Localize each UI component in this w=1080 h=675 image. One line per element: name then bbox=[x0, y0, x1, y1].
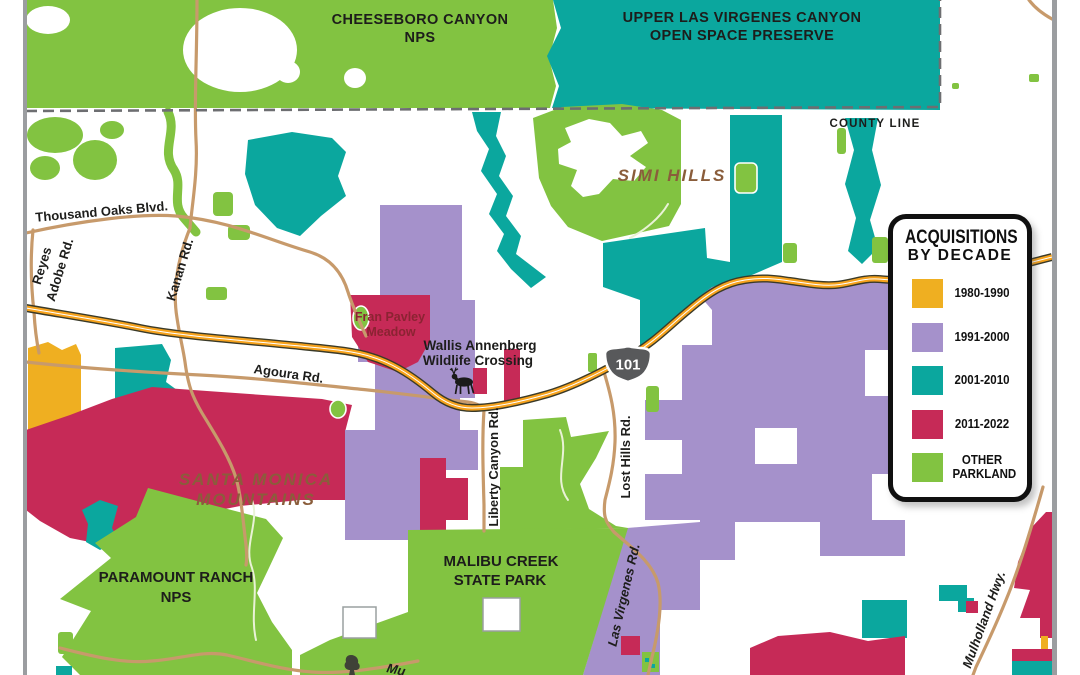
parkland-patch bbox=[330, 400, 346, 418]
fran-pavley-label-line1: Fran Pavley bbox=[355, 310, 425, 324]
acquisitions-map: 101 CHEESEBORO CANYON NPS UPPER LAS VIRG… bbox=[0, 0, 1080, 675]
legend-title: ACQUISITIONS BY DECADE bbox=[893, 228, 1027, 264]
us-101-shield-icon: 101 bbox=[605, 346, 651, 382]
us-101-shield-label: 101 bbox=[615, 357, 640, 374]
acquisition-2001-2010-region bbox=[472, 112, 546, 288]
acquisition-2011-2022-region bbox=[621, 636, 640, 655]
malibu-creek-label-line1: MALIBU CREEK bbox=[444, 553, 559, 570]
parkland-patch bbox=[646, 386, 659, 412]
santa-monica-label-line1: SANTA MONICA bbox=[179, 470, 333, 489]
terrain-gap bbox=[344, 68, 366, 88]
parkland-patch bbox=[837, 128, 846, 154]
terrain-gap bbox=[483, 598, 520, 631]
parkland-patch bbox=[735, 163, 757, 193]
legend-item-1991-2000: 1991-2000 bbox=[893, 315, 1027, 359]
legend-item-other-parkland: OTHERPARKLAND bbox=[893, 446, 1027, 490]
legend-swatch-2001-2010 bbox=[912, 366, 943, 395]
legend-swatch-other-parkland bbox=[912, 453, 943, 482]
mulholland-hwy-label: Mulholland Hwy. bbox=[959, 569, 1008, 670]
lost-hills-rd-label: Lost Hills Rd. bbox=[618, 415, 633, 498]
legend-swatch-2011-2022 bbox=[912, 410, 943, 439]
right-margin bbox=[1057, 0, 1080, 675]
legend-item-2011-2022: 2011-2022 bbox=[893, 402, 1027, 446]
upper-las-virgenes-label-line1: UPPER LAS VIRGENES CANYON bbox=[623, 10, 862, 26]
parkland-patch bbox=[27, 117, 83, 153]
parkland-dot bbox=[645, 658, 649, 662]
road-reyes-adobe bbox=[31, 230, 39, 353]
terrain-gap bbox=[276, 61, 300, 83]
upper-las-virgenes-label-line2: OPEN SPACE PRESERVE bbox=[650, 28, 834, 44]
acquisition-2001-2010-region bbox=[862, 600, 907, 638]
acquisition-2011-2022-region bbox=[473, 368, 487, 394]
cheeseboro-label-line1: CHEESEBORO CANYON bbox=[332, 12, 509, 28]
wallis-annenberg-label-line1: Wallis Annenberg bbox=[423, 338, 536, 353]
legend-swatch-1991-2000 bbox=[912, 323, 943, 352]
legend-item-1980-1990: 1980-1990 bbox=[893, 272, 1027, 316]
parkland-patch bbox=[588, 353, 597, 372]
acquisition-1991-2000-region bbox=[645, 280, 908, 560]
liberty-canyon-rd-label: Liberty Canyon Rd. bbox=[486, 407, 501, 526]
simi-hills-label: SIMI HILLS bbox=[618, 166, 727, 185]
legend-label-1980-1990: 1980-1990 bbox=[953, 287, 1012, 300]
acquisition-2001-2010-region bbox=[245, 132, 346, 236]
parkland-patch bbox=[206, 287, 227, 300]
terrain-gap bbox=[343, 607, 376, 638]
paramount-ranch-label-line2: NPS bbox=[161, 589, 192, 606]
county-line-label: COUNTY LINE bbox=[830, 118, 921, 130]
map-border-left bbox=[23, 0, 27, 675]
legend-swatch-1980-1990 bbox=[912, 279, 943, 308]
map-border-right bbox=[1052, 0, 1057, 675]
parkland-patch bbox=[213, 192, 233, 216]
legend-label-other-parkland: OTHERPARKLAND bbox=[953, 454, 1012, 480]
parkland-patch bbox=[1029, 74, 1039, 82]
paramount-ranch-label-line1: PARAMOUNT RANCH bbox=[99, 569, 254, 586]
parkland-patch bbox=[952, 83, 959, 89]
legend: ACQUISITIONS BY DECADE 1980-1990 1991-20… bbox=[888, 214, 1032, 502]
legend-label-2011-2022: 2011-2022 bbox=[953, 418, 1012, 431]
acquisition-2011-2022-region bbox=[750, 632, 905, 675]
acquisition-2011-2022-region bbox=[1012, 649, 1052, 662]
terrain-gap bbox=[26, 6, 70, 34]
legend-items: 1980-1990 1991-2000 2001-2010 2011-2022 … bbox=[893, 272, 1027, 490]
legend-label-1991-2000: 1991-2000 bbox=[953, 331, 1012, 344]
road-corner bbox=[1029, 0, 1052, 19]
legend-title-line2: BY DECADE bbox=[893, 248, 1027, 264]
legend-title-line1: ACQUISITIONS bbox=[905, 228, 1015, 248]
parkland-patch bbox=[30, 156, 60, 180]
parkland-patch bbox=[783, 243, 797, 263]
left-margin bbox=[0, 0, 23, 675]
fran-pavley-label-line2: Meadow bbox=[366, 325, 416, 339]
legend-label-parkland: PARKLAND bbox=[953, 467, 1017, 481]
acquisition-2001-2010-region bbox=[56, 666, 72, 675]
acquisition-2001-2010-region bbox=[1012, 661, 1052, 675]
legend-item-2001-2010: 2001-2010 bbox=[893, 359, 1027, 403]
santa-monica-label-line2: MOUNTAINS bbox=[196, 490, 316, 509]
legend-label-other: OTHER bbox=[962, 453, 1002, 467]
malibu-creek-state-park-region bbox=[300, 528, 628, 675]
acquisition-2011-2022-region bbox=[966, 601, 978, 613]
legend-label-2001-2010: 2001-2010 bbox=[953, 374, 1012, 387]
kanan-rd-label: Kanan Rd. bbox=[163, 237, 196, 303]
parkland-patch bbox=[100, 121, 124, 139]
malibu-creek-north-parkland bbox=[500, 417, 628, 530]
malibu-creek-label-line2: STATE PARK bbox=[454, 572, 547, 589]
parkland-patch bbox=[73, 140, 117, 180]
wallis-annenberg-label-line2: Wildlife Crossing bbox=[423, 353, 533, 368]
acquisition-2011-2022-region bbox=[1014, 512, 1052, 638]
cheeseboro-label-line2: NPS bbox=[404, 30, 435, 46]
parkland-patch bbox=[872, 237, 888, 263]
terrain-gap bbox=[755, 428, 797, 464]
